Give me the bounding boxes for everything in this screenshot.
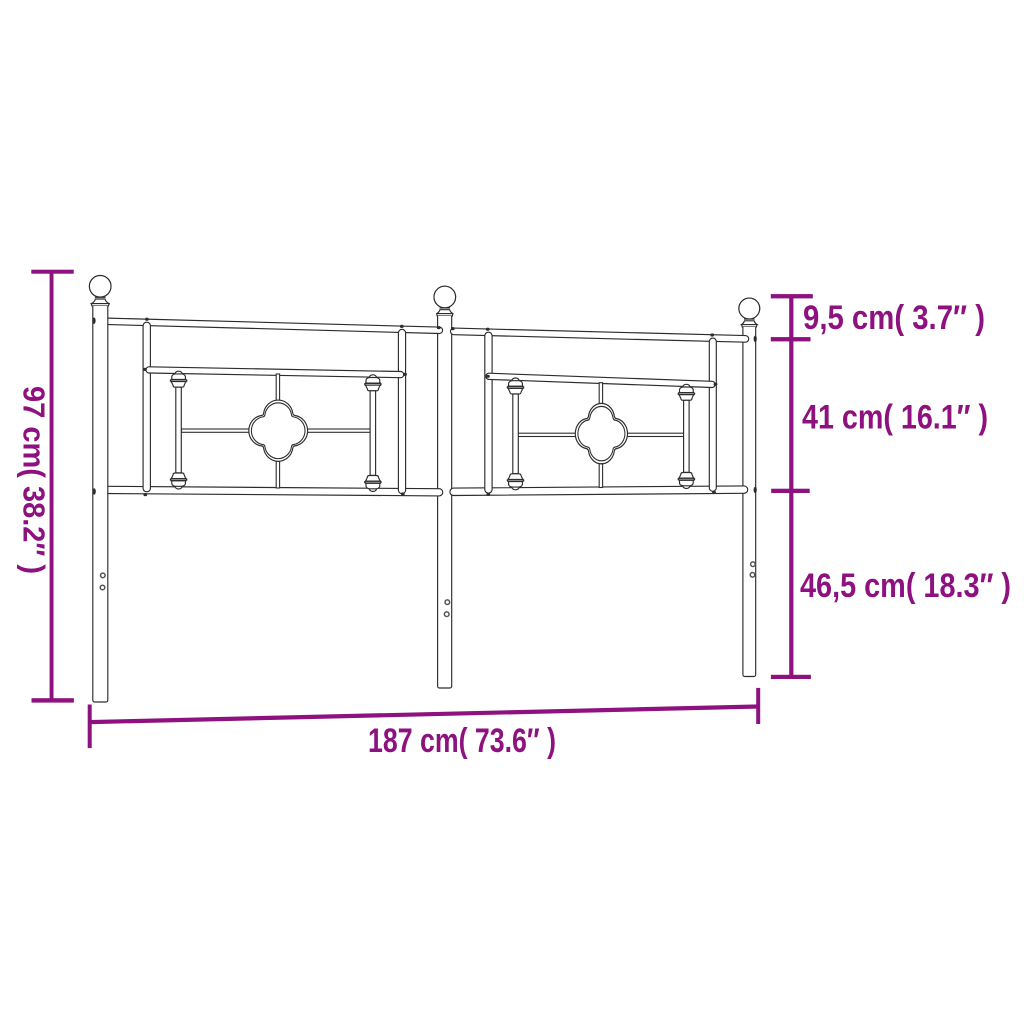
svg-text:41 cm( 16.1″ ): 41 cm( 16.1″ ) xyxy=(802,399,988,437)
svg-text:187 cm( 73.6″ ): 187 cm( 73.6″ ) xyxy=(368,722,556,760)
svg-text:46,5 cm( 18.3″ ): 46,5 cm( 18.3″ ) xyxy=(800,567,1011,605)
svg-text:9,5 cm( 3.7″ ): 9,5 cm( 3.7″ ) xyxy=(803,299,985,337)
svg-text:97 cm( 38.2″ ): 97 cm( 38.2″ ) xyxy=(17,386,52,574)
